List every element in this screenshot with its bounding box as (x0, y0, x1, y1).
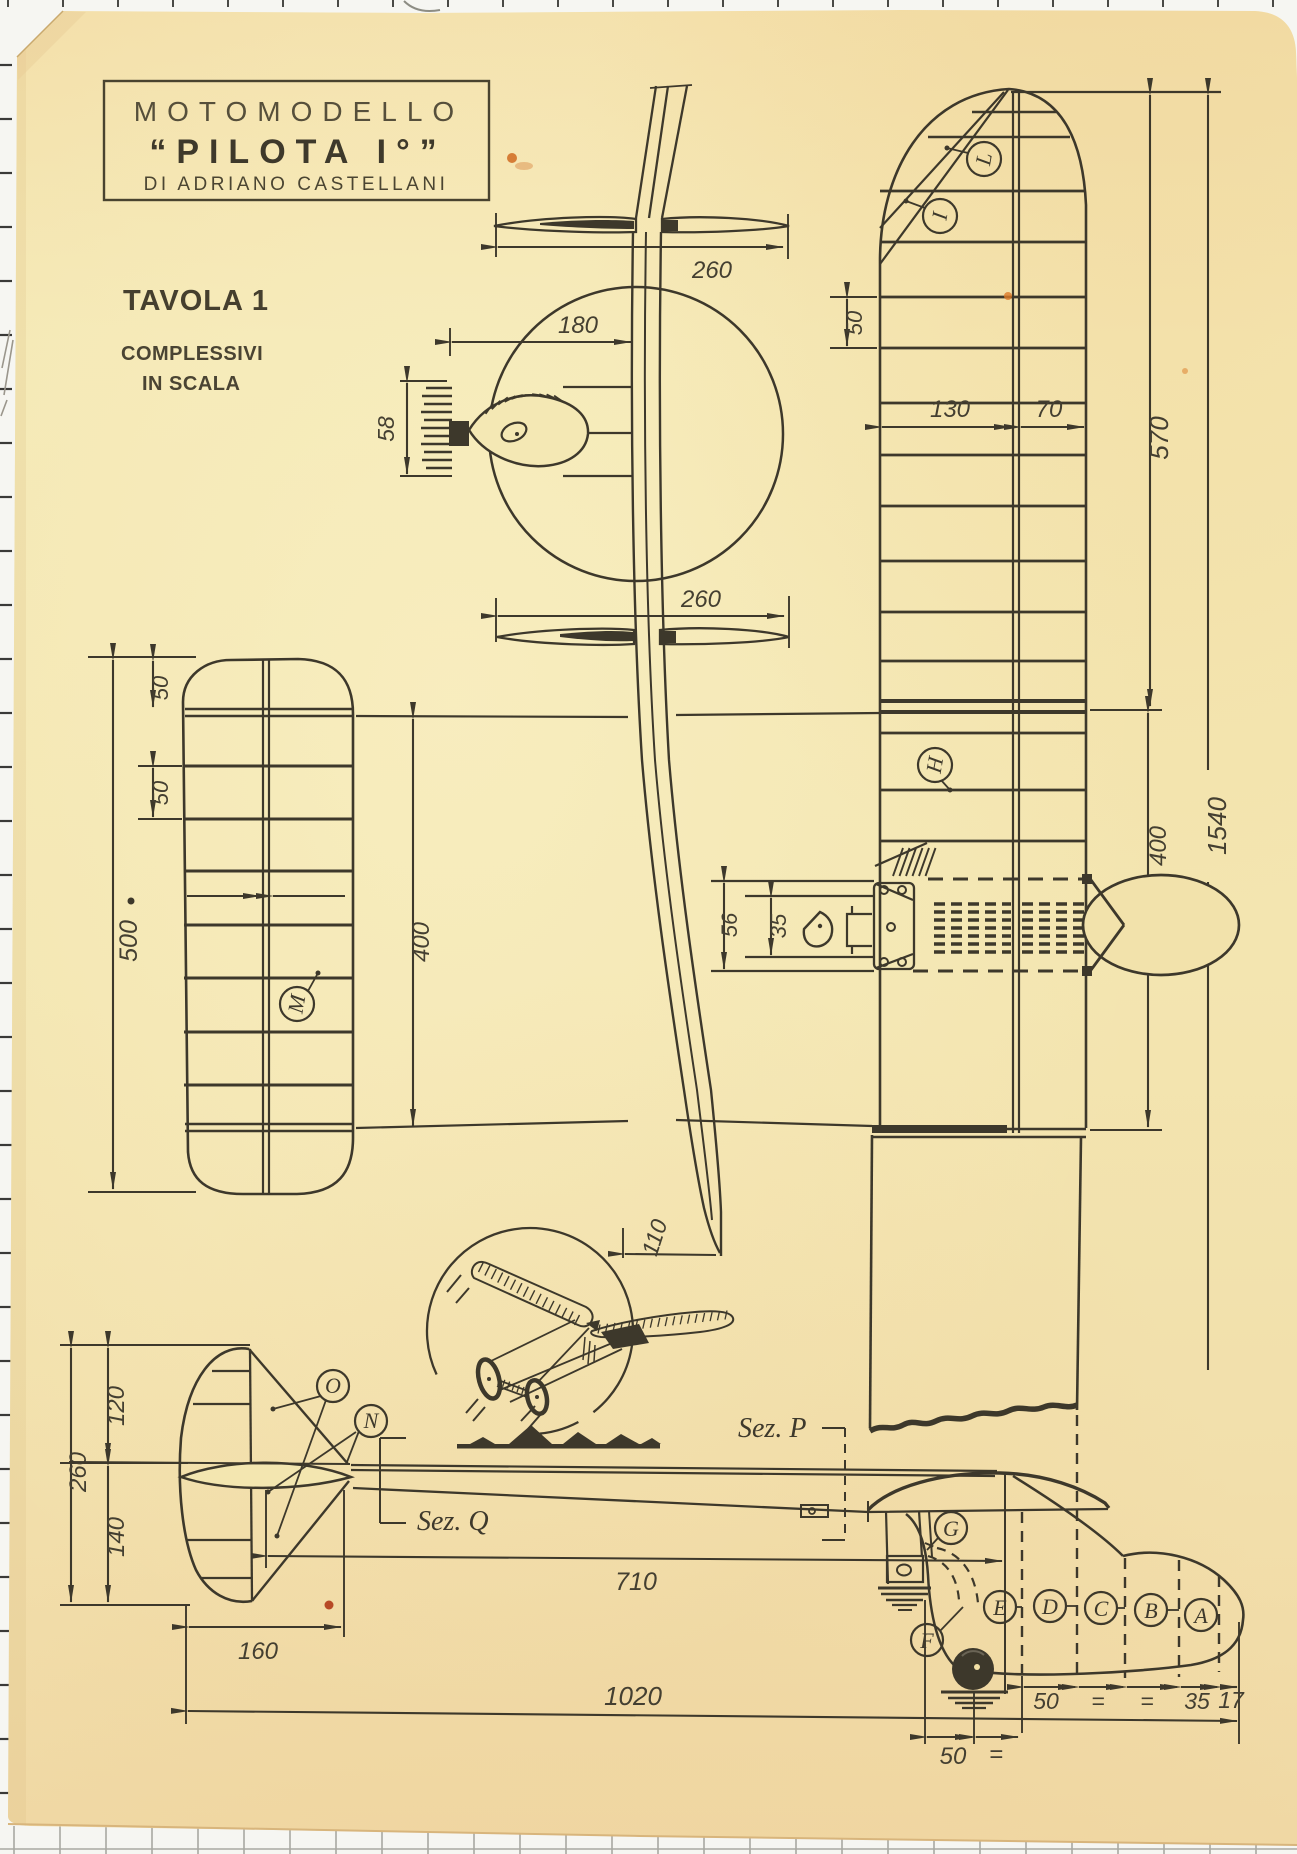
svg-text:F: F (919, 1628, 934, 1653)
svg-text:180: 180 (558, 312, 599, 339)
svg-text:160: 160 (238, 1638, 279, 1665)
svg-text:O: O (325, 1373, 341, 1398)
svg-text:710: 710 (615, 1568, 657, 1596)
svg-text:70: 70 (1036, 396, 1063, 423)
svg-text:35: 35 (766, 913, 791, 938)
svg-text:50: 50 (940, 1743, 967, 1770)
svg-text:A: A (1192, 1603, 1208, 1628)
svg-text:58: 58 (373, 416, 399, 442)
svg-text:17: 17 (1218, 1687, 1245, 1713)
svg-text:=: = (989, 1741, 1003, 1768)
svg-text:260: 260 (680, 586, 722, 613)
svg-text:140: 140 (103, 1516, 130, 1557)
svg-text:260: 260 (65, 1451, 92, 1493)
svg-text:N: N (363, 1408, 380, 1433)
svg-text:D: D (1041, 1594, 1058, 1619)
svg-text:MOTOMODELLO: MOTOMODELLO (134, 96, 464, 127)
svg-text:COMPLESSIVI: COMPLESSIVI (121, 343, 263, 365)
svg-text:260: 260 (691, 257, 733, 284)
svg-text:1540: 1540 (1202, 797, 1232, 855)
svg-text:120: 120 (103, 1385, 130, 1426)
svg-text:35: 35 (1184, 1688, 1210, 1714)
svg-text:1020: 1020 (604, 1681, 662, 1711)
svg-text:TAVOLA 1: TAVOLA 1 (123, 285, 269, 317)
svg-text:G: G (943, 1516, 959, 1541)
svg-text:IN SCALA: IN SCALA (142, 373, 240, 395)
svg-text:50: 50 (148, 675, 173, 700)
svg-text:56: 56 (717, 912, 742, 937)
svg-text:50: 50 (148, 780, 173, 805)
svg-text:400: 400 (1145, 825, 1172, 866)
svg-text:570: 570 (1144, 416, 1174, 460)
svg-text:130: 130 (930, 396, 971, 423)
svg-text:C: C (1094, 1596, 1109, 1621)
svg-text:=: = (1091, 1688, 1104, 1714)
svg-text:400: 400 (408, 921, 435, 962)
svg-text:B: B (1144, 1598, 1157, 1623)
svg-text:50: 50 (1033, 1688, 1059, 1714)
svg-text:=: = (1140, 1688, 1153, 1714)
svg-text:50: 50 (842, 310, 867, 335)
svg-text:DI ADRIANO CASTELLANI: DI ADRIANO CASTELLANI (144, 174, 449, 195)
svg-text:“PILOTA I°”: “PILOTA I°” (149, 133, 446, 171)
svg-text:500: 500 (115, 920, 143, 962)
svg-text:Sez. P: Sez. P (738, 1413, 806, 1444)
svg-text:E: E (992, 1595, 1007, 1620)
svg-text:Sez. Q: Sez. Q (417, 1506, 489, 1537)
